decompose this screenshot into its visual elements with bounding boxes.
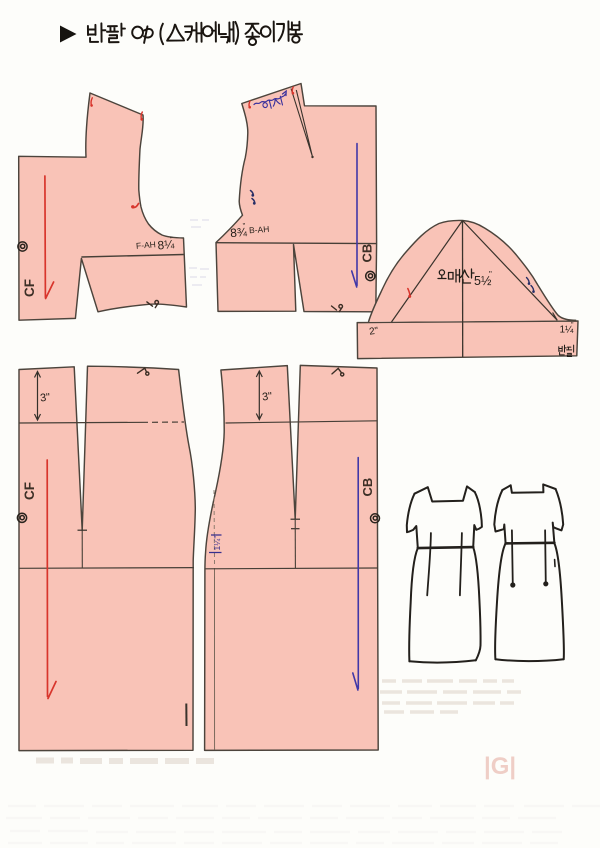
svg-text:8¼: 8¼	[157, 237, 176, 252]
svg-text:1¼": 1¼"	[212, 536, 222, 551]
svg-text:|G|: |G|	[484, 753, 516, 780]
svg-text:CB: CB	[360, 478, 375, 497]
svg-text:CB: CB	[360, 244, 375, 263]
svg-text:CF: CF	[22, 482, 37, 500]
svg-text:B-AH: B-AH	[249, 224, 270, 235]
svg-text:8¾: 8¾	[230, 225, 249, 240]
svg-text:F-AH: F-AH	[136, 239, 157, 251]
svg-text:3": 3"	[262, 390, 273, 403]
svg-text:3": 3"	[40, 391, 51, 404]
svg-text:": "	[489, 270, 492, 279]
svg-text:CF: CF	[22, 279, 37, 297]
